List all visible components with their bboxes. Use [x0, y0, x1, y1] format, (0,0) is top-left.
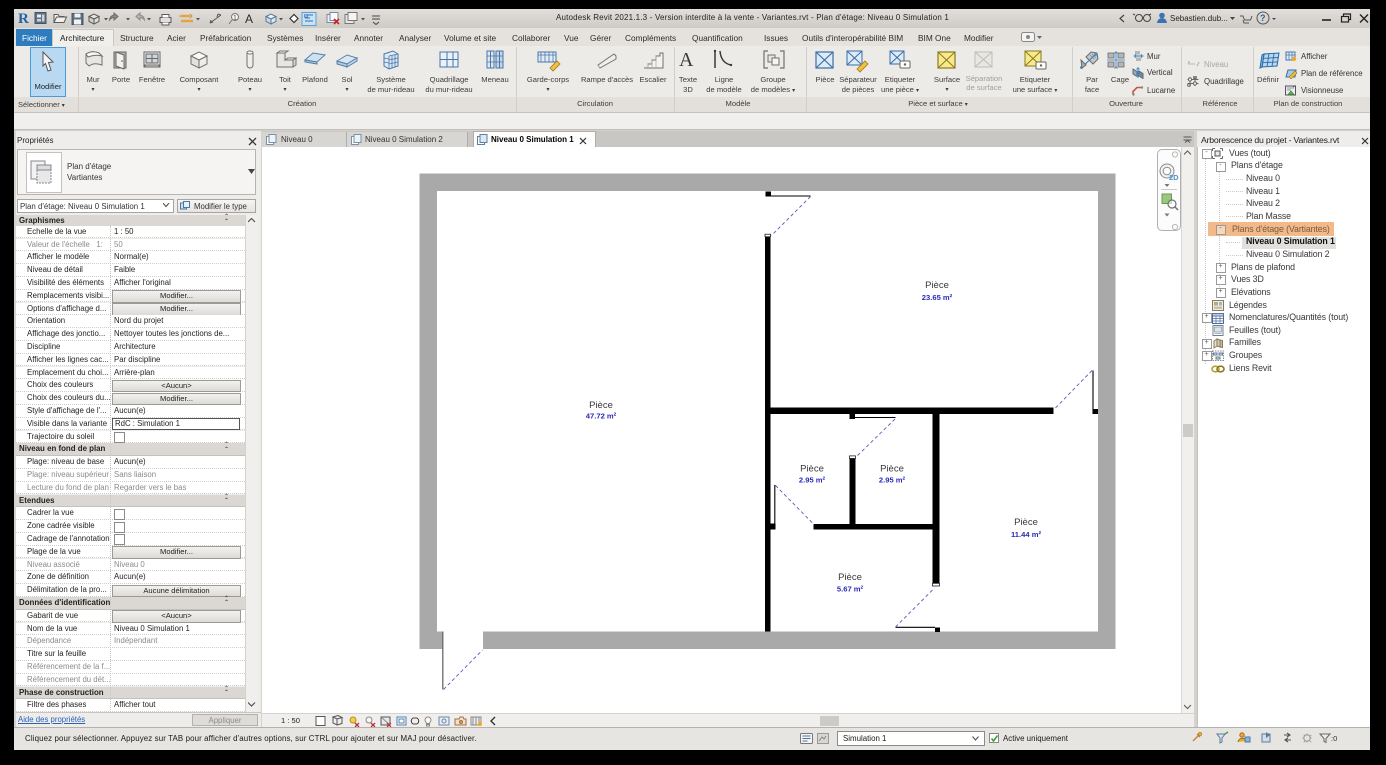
svg-text::0: :0 [1331, 734, 1337, 743]
svg-text:Pièce: Pièce [838, 572, 862, 583]
svg-text:Pièce: Pièce [1014, 517, 1038, 528]
svg-text:A: A [679, 49, 694, 71]
svg-text:2.95 m²: 2.95 m² [799, 476, 826, 485]
svg-text:Sebastien.dub...: Sebastien.dub... [1170, 14, 1228, 23]
svg-text:Pièce: Pièce [880, 464, 904, 475]
svg-text:2.95 m²: 2.95 m² [879, 476, 906, 485]
svg-text:A: A [245, 12, 253, 26]
svg-text:47.72 m²: 47.72 m² [586, 412, 617, 421]
svg-text:Pièce: Pièce [925, 280, 949, 291]
svg-text:2D: 2D [1169, 173, 1179, 182]
svg-text:Pièce: Pièce [589, 400, 613, 411]
svg-text:23.65 m²: 23.65 m² [922, 293, 953, 302]
svg-text:Pièce: Pièce [800, 464, 824, 475]
svg-text:11.44 m²: 11.44 m² [1011, 530, 1041, 539]
svg-text:5.67 m²: 5.67 m² [837, 585, 864, 594]
svg-text:?: ? [1260, 13, 1266, 23]
svg-text:R: R [18, 11, 29, 25]
